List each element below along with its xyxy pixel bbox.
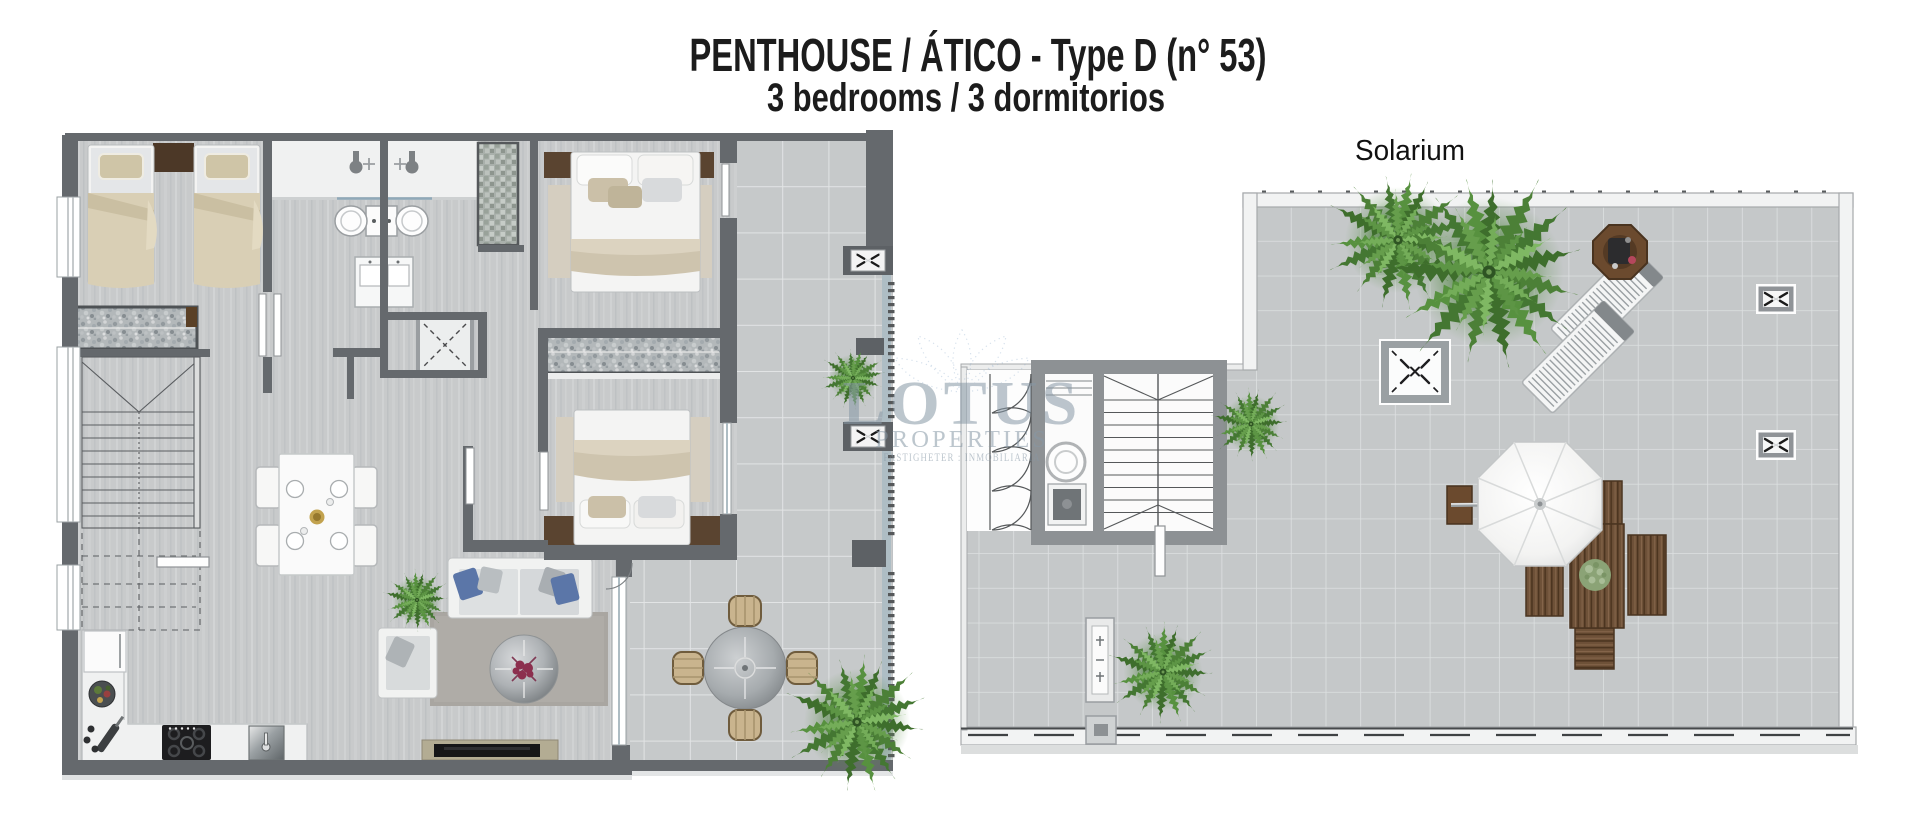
svg-text:Solarium: Solarium [1355, 135, 1465, 167]
svg-text:FASTIGHETER : INMOBILIARIA: FASTIGHETER : INMOBILIARIA [884, 450, 1041, 464]
svg-text:PENTHOUSE / ÁTICO - Type D (n°: PENTHOUSE / ÁTICO - Type D (n° 53) [690, 29, 1267, 81]
svg-text:3 bedrooms / 3 dormitorios: 3 bedrooms / 3 dormitorios [767, 76, 1165, 120]
